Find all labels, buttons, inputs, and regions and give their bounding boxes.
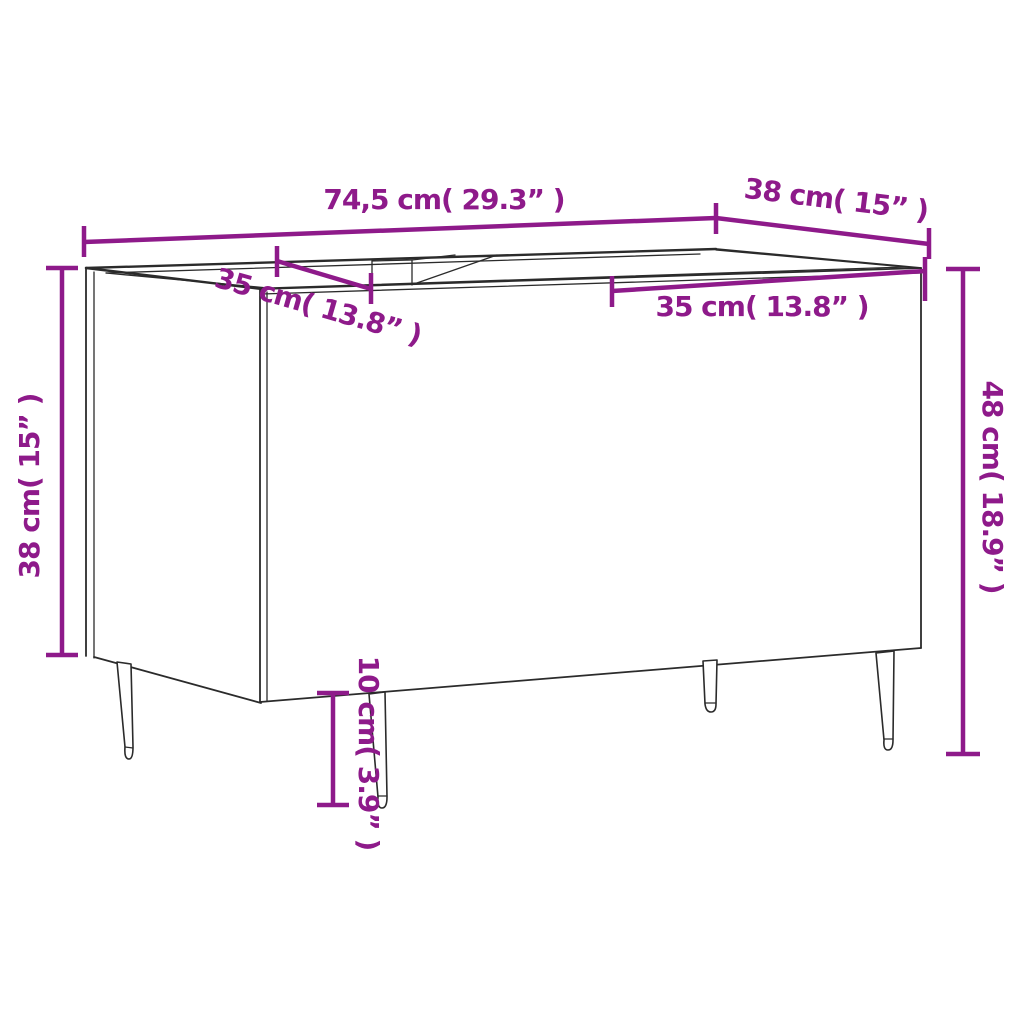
divider-right-face-edge [414,255,497,284]
leg-front-right [876,651,894,750]
right-compartment-dimension-label: 35 cm( 13.8” ) [655,293,868,321]
right-height-dimension-label: 48 cm( 18.9” ) [978,380,1006,593]
width-dimension-label: 74,5 cm( 29.3” ) [323,186,564,214]
left-height-dimension-label: 38 cm( 15” ) [16,394,44,579]
dimension-diagram: 74,5 cm( 29.3” ) 38 cm( 15” ) 35 cm( 13.… [0,0,1024,1024]
top-back-edge [86,249,716,268]
leg-height-dimension-label: 10 cm( 3.9” ) [354,656,382,851]
leg-left-side [117,662,133,759]
width-dimension-line [84,218,716,242]
legs [117,651,894,808]
opening-back-rim [106,254,700,273]
opening-right-rim [716,250,906,267]
leg-back-right [703,660,717,712]
cabinet-line-drawing [0,0,1024,1024]
